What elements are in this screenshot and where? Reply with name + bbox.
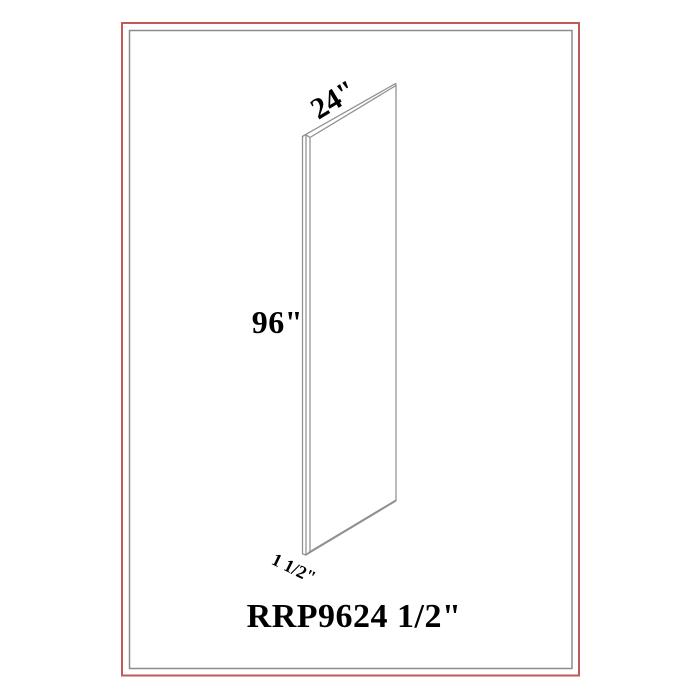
height-dimension-label: 96" xyxy=(252,304,303,340)
panel-face xyxy=(310,86,396,552)
panel-diagram-svg: 24" 96" 1 1/2" RRP9624 1/2" xyxy=(0,0,700,700)
panel-drawing xyxy=(303,83,397,555)
thickness-dimension-label: 1 1/2" xyxy=(269,549,320,587)
diagram-canvas: 24" 96" 1 1/2" RRP9624 1/2" xyxy=(0,0,700,700)
product-code-label: RRP9624 1/2" xyxy=(247,598,462,635)
